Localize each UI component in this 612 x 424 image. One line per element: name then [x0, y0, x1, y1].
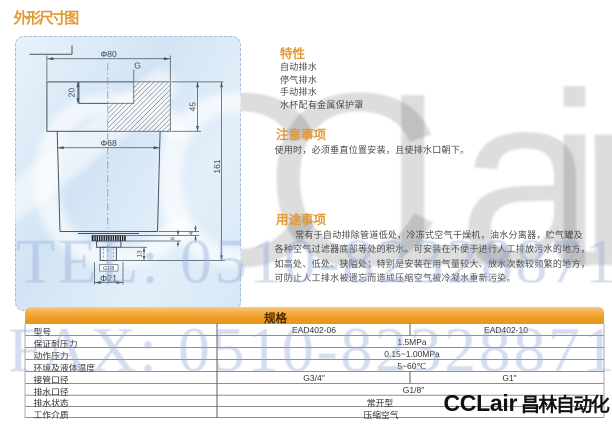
svg-text:FAX: 0510-82328871: FAX: 0510-82328871: [8, 314, 612, 385]
svg-text:TEL: 0510-82328871: TEL: 0510-82328871: [16, 226, 612, 297]
